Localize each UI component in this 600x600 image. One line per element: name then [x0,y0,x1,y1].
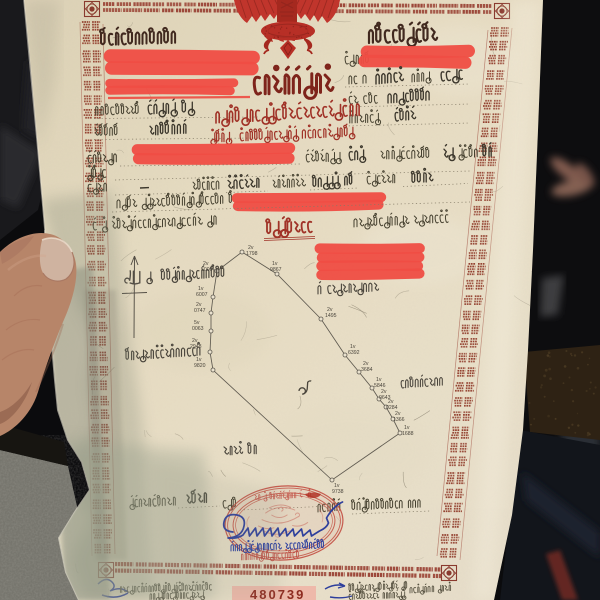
svg-text:9738: 9738 [332,489,344,495]
svg-text:9820: 9820 [194,363,206,369]
svg-text:1495: 1495 [325,313,337,319]
svg-text:3684: 3684 [361,367,373,373]
svg-text:1798: 1798 [246,251,258,257]
svg-text:6007: 6007 [196,292,208,298]
svg-text:9867: 9867 [270,267,282,273]
svg-text:0747: 0747 [194,308,206,314]
svg-text:6392: 6392 [348,350,360,356]
svg-text:0063: 0063 [192,326,204,332]
svg-text:1688: 1688 [402,431,414,437]
svg-text:1366: 1366 [393,417,405,423]
